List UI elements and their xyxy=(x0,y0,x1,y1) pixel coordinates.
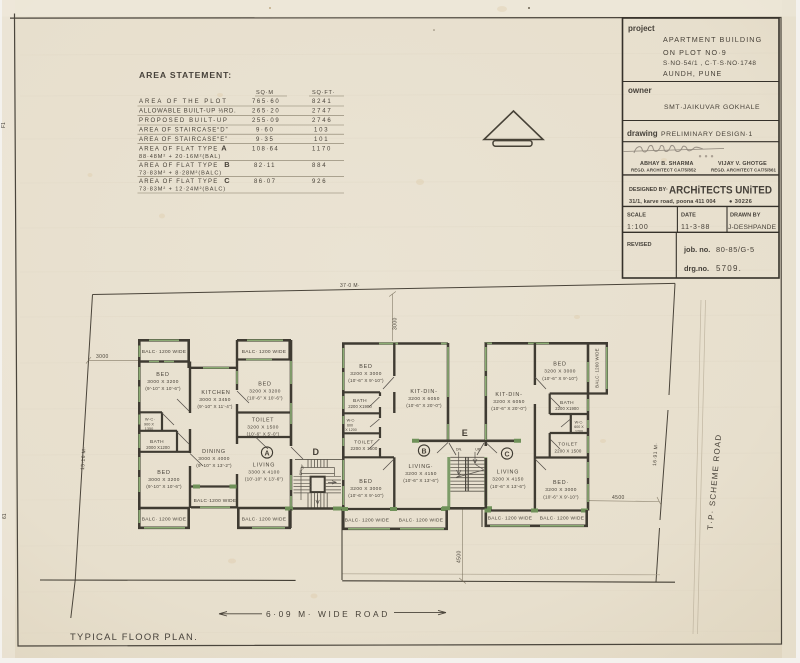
svg-text:11-3-88: 11-3-88 xyxy=(681,224,710,231)
svg-text:1350: 1350 xyxy=(145,427,153,431)
svg-text:103: 103 xyxy=(314,127,329,133)
svg-text:SMT·JAIKUVAR GOKHALE: SMT·JAIKUVAR GOKHALE xyxy=(664,104,760,111)
svg-text:BALC· 1200 WIDE: BALC· 1200 WIDE xyxy=(399,518,444,524)
svg-text:F1: F1 xyxy=(1,122,7,128)
svg-text:(10'-6" X 9'-10"): (10'-6" X 9'-10") xyxy=(542,376,578,381)
svg-text:4500: 4500 xyxy=(612,495,625,501)
svg-text:REGD. ARCHITECT CA/75/852: REGD. ARCHITECT CA/75/852 xyxy=(631,168,696,173)
svg-text:AREA STATEMENT:: AREA STATEMENT: xyxy=(139,70,232,80)
svg-text:3200 X 1500: 3200 X 1500 xyxy=(247,425,279,431)
svg-text:AUNDH, PUNE: AUNDH, PUNE xyxy=(663,71,722,78)
svg-text:600 X: 600 X xyxy=(574,425,584,429)
svg-text:4500: 4500 xyxy=(457,550,463,563)
svg-text:5709.: 5709. xyxy=(716,264,742,273)
svg-text:J-DESHPANDE: J-DESHPANDE xyxy=(728,224,777,231)
svg-text:BALC· 1200 WIDE: BALC· 1200 WIDE xyxy=(242,517,287,523)
svg-text:6·09 M· WIDE ROAD: 6·09 M· WIDE ROAD xyxy=(266,609,389,619)
svg-text:KIT-DIN-: KIT-DIN- xyxy=(495,392,522,398)
svg-text:3200 X 6050: 3200 X 6050 xyxy=(408,396,440,402)
svg-text:LIVING·: LIVING· xyxy=(408,464,433,470)
svg-text:2200 X 1500: 2200 X 1500 xyxy=(554,449,581,454)
svg-text:BALC· 1200 WIDE: BALC· 1200 WIDE xyxy=(345,518,390,524)
svg-text:owner: owner xyxy=(628,86,652,95)
svg-text:drg.no.: drg.no. xyxy=(684,264,709,273)
svg-text:BALC· 1200 WIDE: BALC· 1200 WIDE xyxy=(142,517,187,523)
svg-text:3200 X 3200: 3200 X 3200 xyxy=(249,389,281,395)
svg-text:73·83M² + 12·24M²(BALC): 73·83M² + 12·24M²(BALC) xyxy=(139,187,226,193)
svg-text:AREA OF THE PLOT: AREA OF THE PLOT xyxy=(139,99,228,105)
svg-text:3200 X 3000: 3200 X 3000 xyxy=(545,487,577,493)
svg-text:UP.: UP. xyxy=(475,448,481,452)
svg-text:1200: 1200 xyxy=(575,430,583,434)
svg-text:(9'-10" X 10'-6"): (9'-10" X 10'-6") xyxy=(146,484,182,489)
svg-text:3000 X 3200: 3000 X 3200 xyxy=(147,379,179,385)
svg-text:TOILET: TOILET xyxy=(354,440,374,446)
svg-text:(9'-10" X 13'-2"): (9'-10" X 13'-2") xyxy=(196,463,232,468)
svg-text:(9'-10" X 10'-6"): (9'-10" X 10'-6") xyxy=(145,386,181,391)
svg-text:BED: BED xyxy=(157,470,170,476)
svg-text:BED: BED xyxy=(553,362,566,368)
svg-text:TOILET: TOILET xyxy=(558,442,578,448)
svg-text:3200 X 6050: 3200 X 6050 xyxy=(493,399,525,405)
svg-text:AREA OF STAIRCASE“E”: AREA OF STAIRCASE“E” xyxy=(139,137,228,143)
svg-text:(10'-6" X 9'-10"): (10'-6" X 9'-10") xyxy=(543,495,579,500)
svg-text:SCALE: SCALE xyxy=(627,213,646,219)
svg-text:W·C·: W·C· xyxy=(575,421,584,425)
svg-text:(10'-6" X 20'-0"): (10'-6" X 20'-0") xyxy=(491,406,527,411)
svg-text:108·64: 108·64 xyxy=(252,146,279,152)
svg-text:(9'-10" X 11'-4"): (9'-10" X 11'-4") xyxy=(197,404,232,409)
svg-text:80-85/G-5: 80-85/G-5 xyxy=(716,245,755,254)
svg-text:2746: 2746 xyxy=(312,118,333,124)
svg-text:PROPOSED BUILT-UP: PROPOSED BUILT-UP xyxy=(139,118,228,124)
svg-text:project: project xyxy=(628,24,655,33)
svg-text:265·20: 265·20 xyxy=(252,109,280,115)
svg-text:LIVING: LIVING xyxy=(253,463,275,469)
svg-text:KITCHEN: KITCHEN xyxy=(201,390,230,396)
svg-text:DATE: DATE xyxy=(681,213,696,219)
svg-text:PRELIMINARY DESIGN·1: PRELIMINARY DESIGN·1 xyxy=(661,131,753,138)
svg-text:BALC· 1200 WIDE: BALC· 1200 WIDE xyxy=(595,348,600,388)
svg-text:drawing: drawing xyxy=(627,129,658,138)
svg-text:ABHAY B. SHARMA: ABHAY B. SHARMA xyxy=(640,161,694,167)
svg-text:X 1200: X 1200 xyxy=(345,428,356,432)
svg-text:D: D xyxy=(313,447,320,457)
svg-text:UP: UP xyxy=(301,464,305,470)
svg-text:255·09: 255·09 xyxy=(252,118,280,124)
svg-text:31/1, karve road, poona 411 00: 31/1, karve road, poona 411 004 xyxy=(629,199,717,205)
svg-text:BALC· 1200 WIDE: BALC· 1200 WIDE xyxy=(242,349,287,355)
svg-text:A: A xyxy=(264,450,269,457)
svg-text:3000 X 3450: 3000 X 3450 xyxy=(199,397,231,403)
svg-text:BED: BED xyxy=(359,364,372,370)
svg-text:job. no.: job. no. xyxy=(683,245,710,254)
svg-text:TYPICAL FLOOR PLAN.: TYPICAL FLOOR PLAN. xyxy=(70,631,198,642)
svg-text:2200 X1900: 2200 X1900 xyxy=(555,406,579,411)
svg-text:REGD. ARCHITECT CA/75/861: REGD. ARCHITECT CA/75/861 xyxy=(711,168,776,173)
svg-text:3200 X 3000: 3200 X 3000 xyxy=(544,369,576,375)
svg-text:BALC·1200 WIDE: BALC·1200 WIDE xyxy=(194,498,237,504)
svg-text:73·83M² + 8·28M²(BALC): 73·83M² + 8·28M²(BALC) xyxy=(139,170,222,176)
svg-text:9·60: 9·60 xyxy=(256,127,274,133)
svg-text:W·C·: W·C· xyxy=(347,419,356,423)
svg-text:3000 X 4000: 3000 X 4000 xyxy=(198,456,230,462)
svg-text:9·35: 9·35 xyxy=(256,137,274,143)
svg-text:3200 X 4150: 3200 X 4150 xyxy=(492,477,524,483)
svg-text:765·60: 765·60 xyxy=(252,99,280,105)
svg-text:AREA OF STAIRCASE“D”: AREA OF STAIRCASE“D” xyxy=(139,127,229,133)
svg-text:3300 X 4100: 3300 X 4100 xyxy=(248,470,280,476)
svg-text:(10'-6" X 9'-10"): (10'-6" X 9'-10") xyxy=(348,378,384,383)
svg-text:ARCHiTECTS UNiTED: ARCHiTECTS UNiTED xyxy=(669,185,772,197)
svg-text:DN: DN xyxy=(299,470,303,476)
svg-text:DINING: DINING xyxy=(202,449,226,455)
svg-text:3200 X 4150: 3200 X 4150 xyxy=(405,471,437,477)
svg-text:3200 X 3000: 3200 X 3000 xyxy=(350,371,382,377)
svg-text:8241: 8241 xyxy=(312,99,333,105)
svg-text:(10'-6" X 13'-6"): (10'-6" X 13'-6") xyxy=(403,478,439,483)
svg-text:APARTMENT BUILDING: APARTMENT BUILDING xyxy=(663,35,762,44)
svg-text:W·C·: W·C· xyxy=(145,417,155,422)
svg-text:3000: 3000 xyxy=(393,317,399,330)
svg-text:88·48M² + 20·16M²(BAL): 88·48M² + 20·16M²(BAL) xyxy=(139,154,221,160)
svg-text:DESIGNED BY·: DESIGNED BY· xyxy=(629,187,668,193)
svg-text:TOILET: TOILET xyxy=(252,418,274,424)
svg-text:SQ·FT·: SQ·FT· xyxy=(312,90,335,96)
svg-text:86·07: 86·07 xyxy=(254,179,276,185)
svg-text:2200 X1900: 2200 X1900 xyxy=(348,404,372,409)
svg-text:VIJAY V. GHOTGE: VIJAY V. GHOTGE xyxy=(718,161,767,167)
svg-text:S·NO·54/1 , C·T·S·NO·1748: S·NO·54/1 , C·T·S·NO·1748 xyxy=(663,60,756,67)
svg-text:3200 X 3000: 3200 X 3000 xyxy=(350,486,382,492)
svg-text:E: E xyxy=(462,428,469,438)
svg-text:DRAWN BY: DRAWN BY xyxy=(730,213,761,219)
svg-text:LIVING: LIVING xyxy=(497,470,519,476)
svg-text:900 X: 900 X xyxy=(144,423,154,427)
svg-text:2200 X 1500: 2200 X 1500 xyxy=(350,446,377,451)
svg-text:REVISED: REVISED xyxy=(627,242,652,248)
svg-text:2000 X1200: 2000 X1200 xyxy=(146,445,170,450)
svg-text:C: C xyxy=(504,451,509,458)
svg-text:(10'-6" X 13'-6"): (10'-6" X 13'-6") xyxy=(490,484,526,489)
svg-text:BED: BED xyxy=(258,382,271,388)
svg-text:KIT-DIN-: KIT-DIN- xyxy=(410,389,437,395)
svg-text:3000: 3000 xyxy=(96,354,109,360)
svg-text:37·0 M·: 37·0 M· xyxy=(340,283,360,289)
svg-text:BED: BED xyxy=(359,479,372,485)
svg-text:61: 61 xyxy=(2,513,8,519)
svg-text:101: 101 xyxy=(314,137,329,143)
svg-text:● 30226: ● 30226 xyxy=(729,199,752,205)
svg-text:926: 926 xyxy=(312,179,327,185)
svg-text:3000 X 3200: 3000 X 3200 xyxy=(148,477,180,483)
svg-text:BALC· 1200 WIDE: BALC· 1200 WIDE xyxy=(142,349,187,355)
svg-text:(10'-10" X 13'-6"): (10'-10" X 13'-6") xyxy=(245,477,284,482)
svg-text:82·11: 82·11 xyxy=(254,163,276,169)
svg-text:B: B xyxy=(421,448,426,455)
svg-text:(10'-6" X 5'-0"): (10'-6" X 5'-0") xyxy=(247,432,280,437)
svg-text:600: 600 xyxy=(347,424,353,428)
svg-text:884: 884 xyxy=(312,163,327,169)
svg-text:1170: 1170 xyxy=(312,146,332,152)
svg-text:2747: 2747 xyxy=(312,109,333,115)
svg-text:(10'-6" X 9'-10"): (10'-6" X 9'-10") xyxy=(348,493,384,498)
svg-text:SQ·M: SQ·M xyxy=(256,90,274,96)
svg-text:1:100: 1:100 xyxy=(627,224,649,231)
svg-text:BED·: BED· xyxy=(553,480,569,486)
svg-text:BALC· 1200 WIDE: BALC· 1200 WIDE xyxy=(540,516,585,522)
svg-text:BALC· 1200 WIDE: BALC· 1200 WIDE xyxy=(488,516,533,522)
svg-text:ON PLOT NO·9: ON PLOT NO·9 xyxy=(663,48,727,57)
svg-text:(10'-6" X 20'-0"): (10'-6" X 20'-0") xyxy=(406,403,442,408)
svg-text:ALLOWABLE BUILT-UP ⅓RD.: ALLOWABLE BUILT-UP ⅓RD. xyxy=(139,109,236,115)
svg-text:(10'-6" X 10'-6"): (10'-6" X 10'-6") xyxy=(247,396,283,401)
svg-text:BED: BED xyxy=(156,372,169,378)
svg-text:DN.: DN. xyxy=(456,448,462,452)
